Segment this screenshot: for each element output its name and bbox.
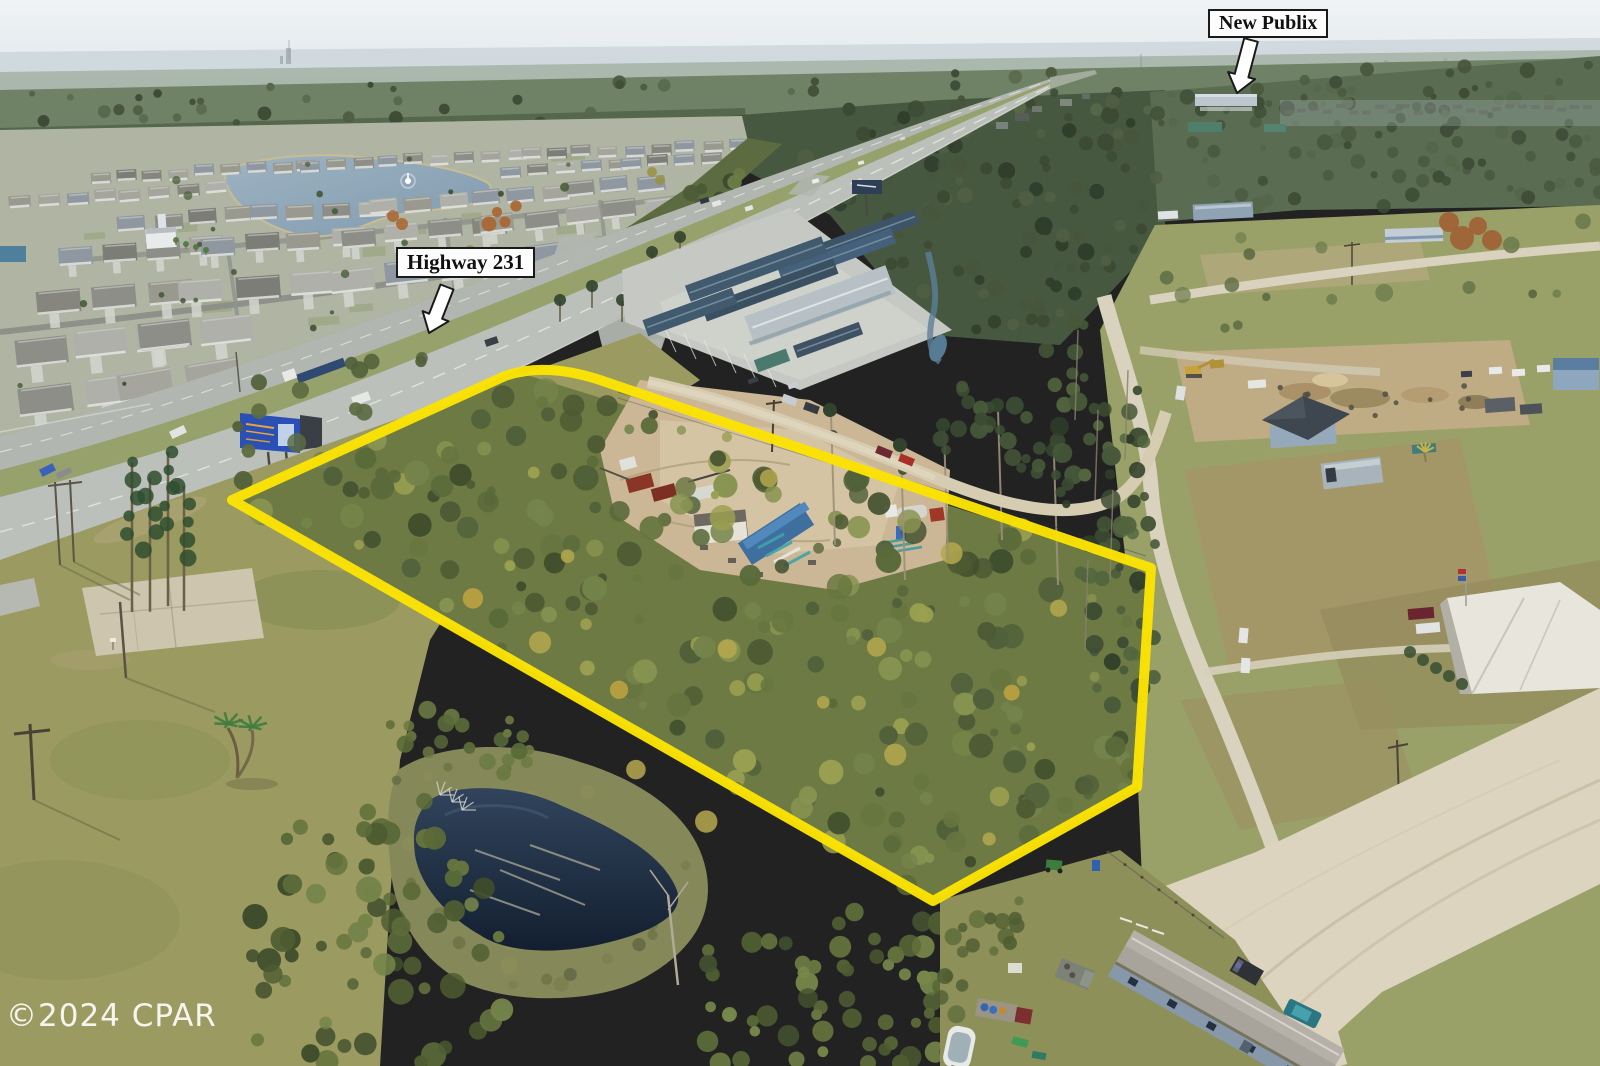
highway-label: Highway 231 xyxy=(396,247,535,278)
watermark: ©2024 CPAR xyxy=(6,998,217,1034)
publix-label: New Publix xyxy=(1208,9,1328,38)
aerial-photo-scene xyxy=(0,0,1600,1066)
aerial-photo: New Publix Highway 231 ©2024 CPAR xyxy=(0,0,1600,1066)
distant-subdivision xyxy=(1280,100,1600,126)
brush-bottom-center xyxy=(697,903,958,1066)
